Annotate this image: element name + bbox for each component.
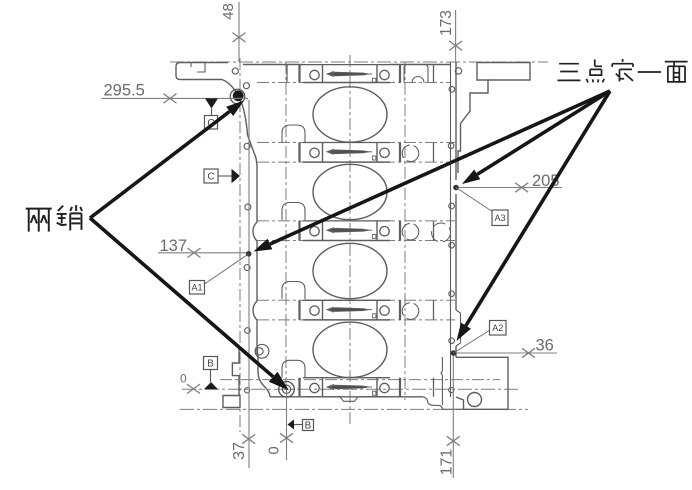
svg-text:0: 0 <box>180 372 187 386</box>
svg-text:A3: A3 <box>494 213 505 223</box>
svg-text:48: 48 <box>220 3 237 20</box>
svg-text:0: 0 <box>266 446 283 454</box>
svg-text:36: 36 <box>536 337 554 355</box>
svg-text:295.5: 295.5 <box>104 82 145 100</box>
svg-text:C: C <box>207 172 214 183</box>
svg-text:B: B <box>305 421 312 432</box>
svg-text:A1: A1 <box>191 283 202 293</box>
svg-text:171: 171 <box>439 449 456 476</box>
svg-text:173: 173 <box>438 10 455 36</box>
svg-text:A2: A2 <box>492 323 503 333</box>
svg-text:B: B <box>207 359 214 370</box>
svg-text:37: 37 <box>231 442 248 460</box>
svg-text:137: 137 <box>160 237 188 255</box>
